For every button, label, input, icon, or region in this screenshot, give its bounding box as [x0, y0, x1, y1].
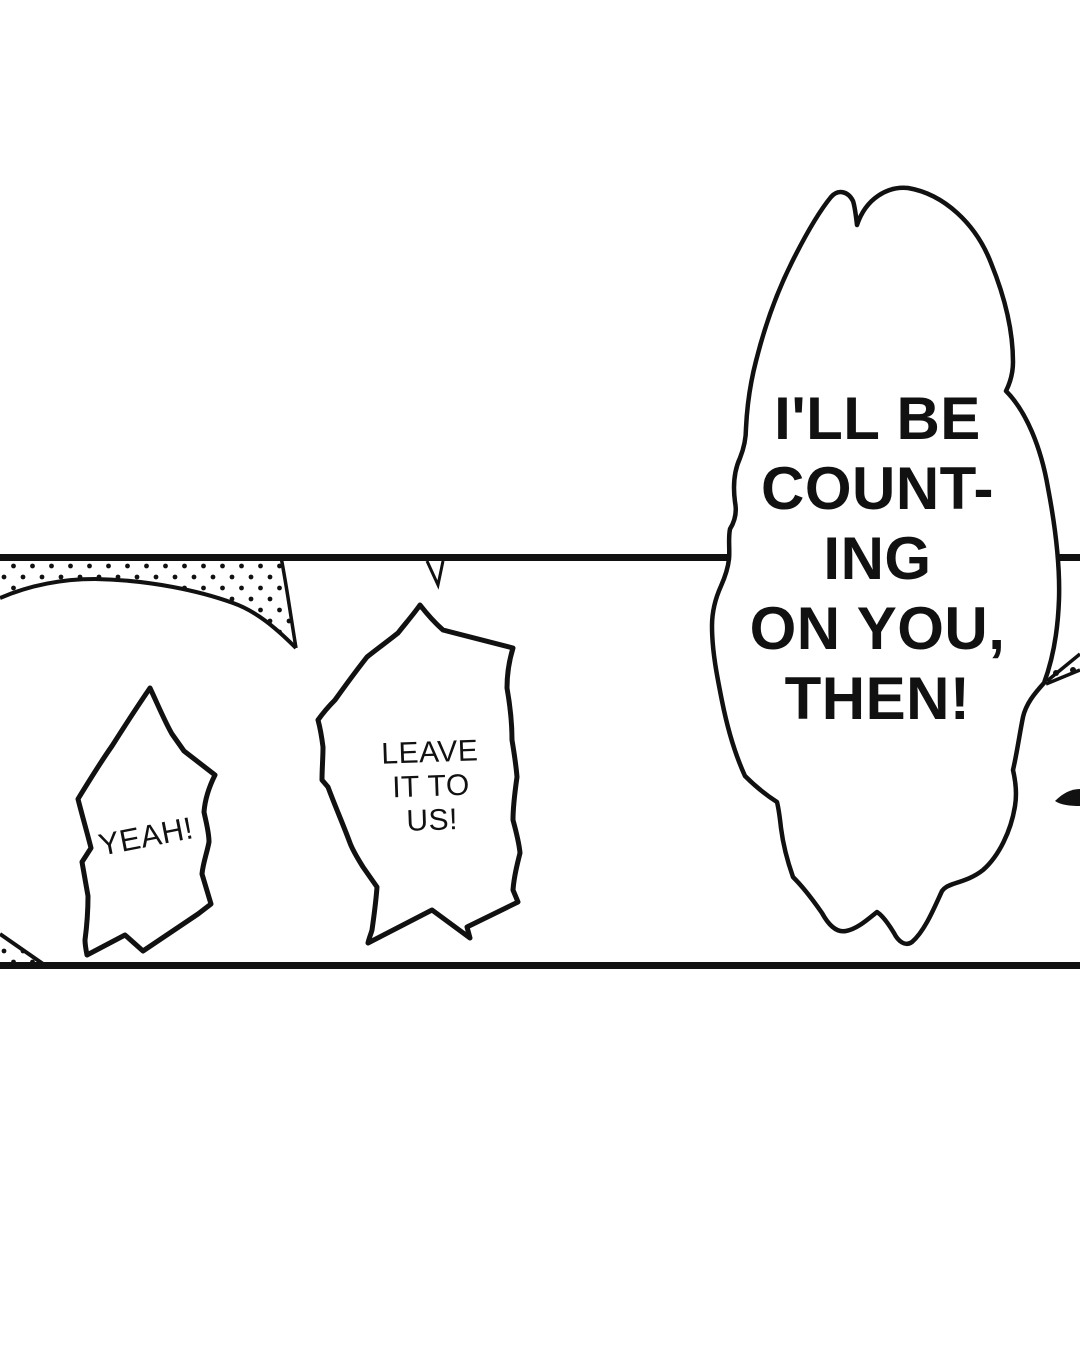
manga-panel: I'LL BE COUNT- ING ON YOU, THEN! YEAH! L…: [0, 0, 1080, 1367]
leave-bubble-line-3: US!: [362, 802, 503, 841]
main-bubble-line-5: THEN!: [725, 664, 1030, 734]
main-bubble-line-1: I'LL BE: [725, 384, 1030, 454]
hair-spike: [427, 561, 443, 585]
main-bubble-text: I'LL BE COUNT- ING ON YOU, THEN!: [725, 384, 1030, 734]
panel-border-bottom: [0, 962, 1080, 969]
screentone-dot-1: [1053, 670, 1059, 676]
corner-screentone: [0, 554, 296, 648]
brush-stroke: [1055, 789, 1080, 806]
screentone-dot-2: [1070, 667, 1076, 673]
leave-bubble-line-1: LEAVE: [359, 734, 500, 773]
main-bubble-line-3: ING: [725, 524, 1030, 594]
main-bubble-line-2: COUNT-: [725, 454, 1030, 524]
leave-bubble-line-2: IT TO: [360, 768, 501, 807]
leave-bubble-text: LEAVE IT TO US!: [359, 734, 502, 841]
main-bubble-line-4: ON YOU,: [725, 594, 1030, 664]
